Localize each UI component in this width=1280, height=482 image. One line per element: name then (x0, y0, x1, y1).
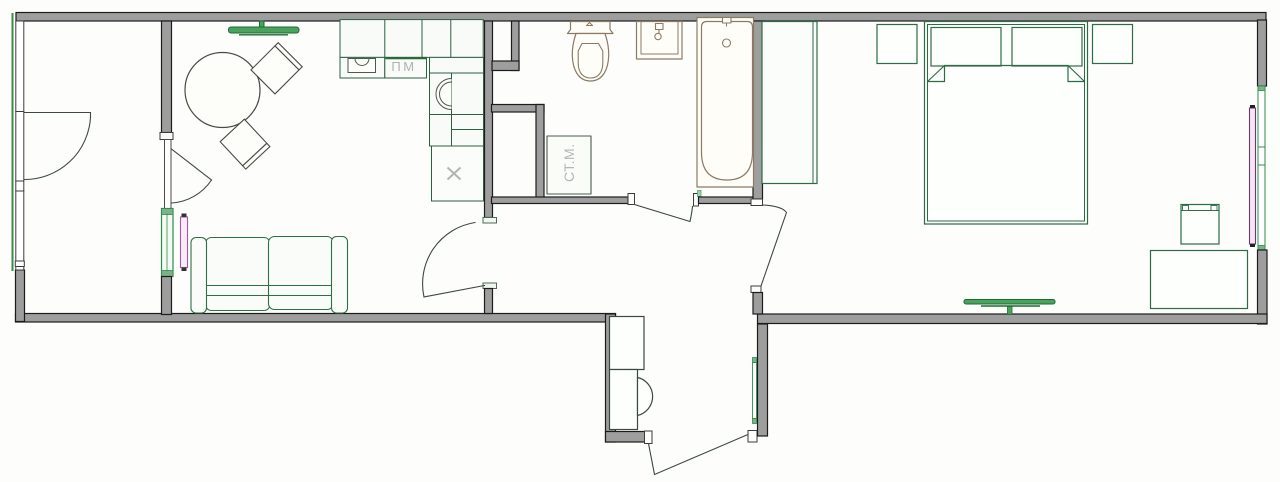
svg-text:СТ.М.: СТ.М. (561, 143, 577, 182)
svg-text:ПМ: ПМ (391, 59, 416, 74)
